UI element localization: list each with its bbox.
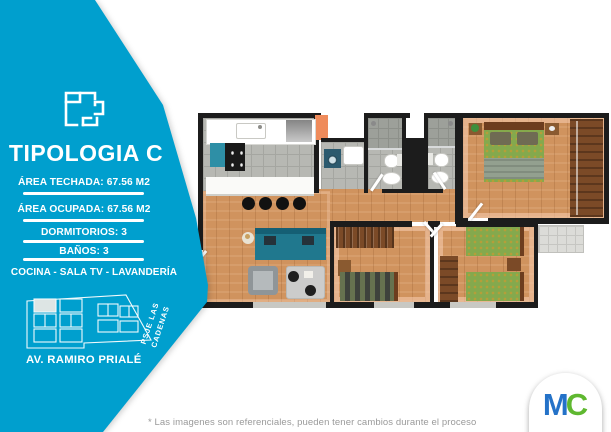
spec-underline — [23, 192, 144, 195]
floorplan-icon — [57, 87, 115, 141]
spec-underline — [23, 240, 144, 243]
spec-underline — [23, 258, 144, 261]
spec-area-techada: ÁREA TECHADA: 67.56 M2 — [0, 177, 168, 188]
page-title: TIPOLOGIA C — [6, 140, 166, 167]
sidebar-shape — [0, 0, 611, 432]
flyer-page: TIPOLOGIA C ÁREA TECHADA: 67.56 M2 ÁREA … — [0, 0, 611, 432]
spec-area-ocupada: ÁREA OCUPADA: 67.56 M2 — [0, 204, 168, 215]
spec-ambientes: COCINA - SALA TV - LAVANDERÍA — [0, 267, 188, 278]
sidebar-background — [0, 0, 611, 432]
spec-underline — [23, 219, 144, 222]
spec-dormitorios: DORMITORIOS: 3 — [0, 227, 168, 238]
street-label: AV. RAMIRO PRIALÉ — [26, 354, 176, 366]
spec-banos: BAÑOS: 3 — [0, 246, 168, 257]
